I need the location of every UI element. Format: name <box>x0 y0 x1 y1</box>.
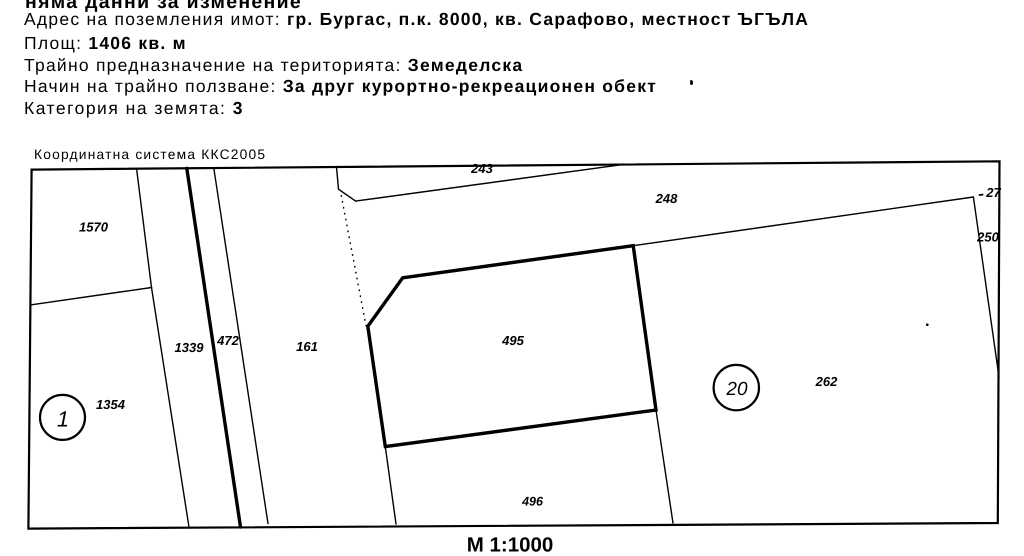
svg-text:1570: 1570 <box>79 220 109 235</box>
svg-text:248: 248 <box>655 191 678 206</box>
svg-text:20: 20 <box>725 379 748 400</box>
svg-text:496: 496 <box>521 495 544 509</box>
svg-text:1: 1 <box>57 407 69 432</box>
svg-text:161: 161 <box>296 339 318 354</box>
svg-text:Координатна система ККС2005: Координатна система ККС2005 <box>34 147 266 162</box>
svg-text:472: 472 <box>216 333 239 348</box>
svg-text:243: 243 <box>470 161 493 176</box>
svg-text:250: 250 <box>976 230 999 245</box>
svg-text:1354: 1354 <box>96 397 126 412</box>
svg-text:27: 27 <box>985 185 1001 200</box>
svg-text:495: 495 <box>501 333 524 348</box>
svg-text:262: 262 <box>815 374 838 389</box>
svg-text:1339: 1339 <box>175 340 205 355</box>
svg-text:М 1:1000: М 1:1000 <box>467 534 554 556</box>
